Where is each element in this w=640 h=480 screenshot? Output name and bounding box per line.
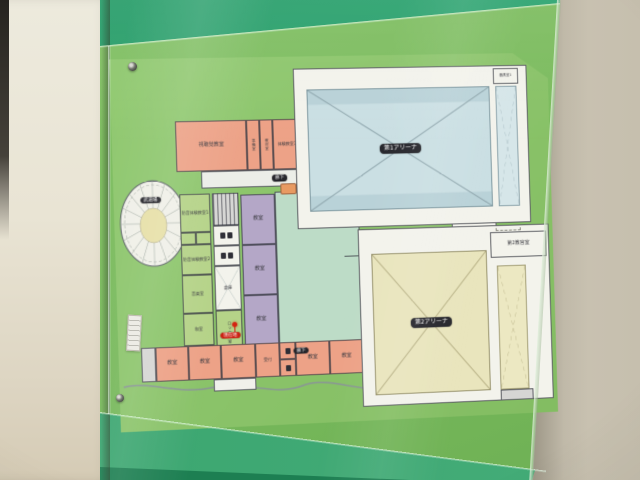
small-room xyxy=(141,347,156,382)
room-label: 教室 xyxy=(233,358,243,364)
room-label: 音楽室 xyxy=(192,292,204,297)
arena2-grey-room xyxy=(501,388,534,401)
music-room: 音楽室 xyxy=(182,274,214,314)
classroom: 教室 xyxy=(243,294,279,346)
small-room xyxy=(196,232,212,245)
round-hall-spokes-icon xyxy=(117,178,190,269)
stairs-room xyxy=(212,193,239,226)
round-hall-building: 武道場 xyxy=(117,178,190,269)
plaza-badge-icon xyxy=(280,183,296,194)
toilet-icon xyxy=(228,252,233,258)
room-label: 受付 xyxy=(264,358,272,363)
you-are-here-label: 現在地 xyxy=(220,332,240,339)
reception-room: 受付 xyxy=(255,342,280,377)
classroom: 教室 xyxy=(242,244,278,295)
room-label: 防音体験教室1 xyxy=(182,210,209,215)
toilet-icon xyxy=(220,232,225,238)
photo-of-floor-map-sign: 武道場 視聴覚教室 準備室 教材室 体験教室3 廊下 防音体験教室1 防音体験教… xyxy=(0,0,640,480)
wall-pillar xyxy=(0,0,112,480)
room-label: 教室 xyxy=(167,361,177,367)
room-label: 防音体験教室2 xyxy=(183,257,210,263)
diagonal-cross-pattern-dashed xyxy=(496,87,519,206)
storage-room: 倉庫 xyxy=(214,265,242,310)
room-label: 教室 xyxy=(308,355,318,361)
room-label: 器具室1 xyxy=(499,74,511,78)
room-label: 教材室 xyxy=(264,139,268,151)
toilet-icon xyxy=(285,348,290,354)
diagonal-cross-pattern-dashed xyxy=(498,266,529,389)
pillar-edge-shadow xyxy=(0,0,9,240)
corridor-label: 廊下 xyxy=(272,175,287,182)
toilet-room xyxy=(213,245,240,266)
arena1-floor: 第1アリーナ xyxy=(306,86,493,212)
classroom: 教室 xyxy=(295,340,330,375)
classroom: 教室 xyxy=(240,194,276,245)
japanese-room: 和室 xyxy=(183,313,215,347)
room-label: 教室 xyxy=(342,354,352,360)
av-classroom: 視聴覚教室 xyxy=(175,120,248,172)
soundproof-room-2: 防音体験教室2 xyxy=(181,244,213,275)
room-label: 教室 xyxy=(255,267,265,273)
room-label: 倉庫 xyxy=(224,285,232,290)
arena2-instructor-room: 第2教官室 xyxy=(490,230,547,257)
glass-left-edge xyxy=(108,46,111,414)
screw-icon xyxy=(116,394,124,402)
arena2-roof-structure xyxy=(495,224,520,232)
room-label: 準備室 xyxy=(251,139,255,151)
room-label: 教室 xyxy=(256,317,266,323)
entrance-porch xyxy=(214,378,257,392)
room-label: 体験教室3 xyxy=(278,142,297,147)
soundproof-room-1: 防音体験教室1 xyxy=(179,193,211,232)
room-label: 教室 xyxy=(253,216,263,222)
classroom: 教室 xyxy=(221,343,256,379)
toilet-icon xyxy=(285,365,290,371)
room-label: 教室 xyxy=(200,360,210,366)
equipment-room-1: 器具室1 xyxy=(493,68,519,84)
arena1-side-gallery xyxy=(495,86,520,207)
arena2-building: 第2教官室 第2アリーナ xyxy=(358,224,554,407)
classroom: 教室 xyxy=(188,345,222,381)
toilet-icon xyxy=(227,232,232,238)
screw-icon xyxy=(128,62,137,71)
corridor-label: 廊下 xyxy=(293,347,308,354)
classroom: 教室 xyxy=(155,346,189,382)
floor-map: 武道場 視聴覚教室 準備室 教材室 体験教室3 廊下 防音体験教室1 防音体験教… xyxy=(109,53,558,433)
toilet-room xyxy=(280,359,297,377)
toilet-icon xyxy=(221,253,226,259)
arena1-label: 第1アリーナ xyxy=(380,143,421,153)
arena2-label: 第2アリーナ xyxy=(411,317,452,328)
arena2-side-gallery xyxy=(497,265,530,390)
round-hall-label: 武道場 xyxy=(140,197,160,204)
toilet-room xyxy=(213,225,240,246)
classroom: 教室 xyxy=(329,339,364,374)
arena1-building: 第1アリーナ 器具室1 xyxy=(293,65,531,229)
small-room xyxy=(180,232,196,245)
room-label: 第2教官室 xyxy=(507,241,530,247)
arena2-floor: 第2アリーナ xyxy=(371,250,491,395)
label-sticker xyxy=(126,315,142,352)
room-label: 視聴覚教室 xyxy=(199,143,225,149)
room-label: 和室 xyxy=(195,327,203,332)
